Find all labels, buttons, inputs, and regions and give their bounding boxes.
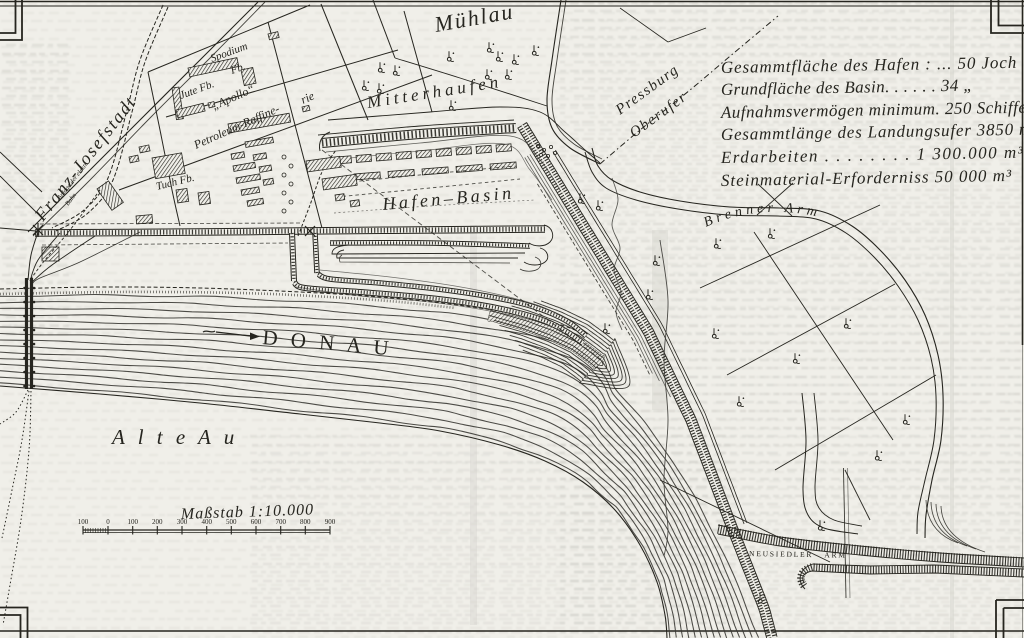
svg-text:700: 700 [275,518,286,526]
svg-text:600: 600 [251,518,262,526]
svg-text:300: 300 [177,518,188,526]
svg-text:100: 100 [78,518,89,526]
svg-text:500: 500 [226,518,237,526]
svg-text:NEUSIEDLER ARM: NEUSIEDLER ARM [749,549,847,560]
svg-text:200: 200 [152,518,163,526]
svg-text:400: 400 [201,518,212,526]
svg-text:A l t e A u: A l t e A u [110,425,238,449]
svg-text:900: 900 [325,518,336,526]
svg-text:800: 800 [300,518,311,526]
svg-text:100: 100 [127,518,138,526]
svg-text:0: 0 [106,518,110,526]
